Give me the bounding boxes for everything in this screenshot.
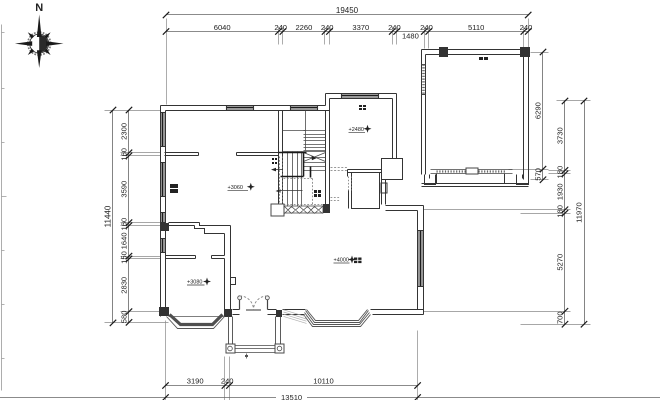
svg-text:1640: 1640 [119, 232, 128, 249]
svg-text:240: 240 [520, 23, 533, 32]
svg-text:19450: 19450 [336, 6, 359, 15]
svg-text:11440: 11440 [104, 205, 113, 227]
svg-text:5110: 5110 [468, 23, 484, 32]
svg-text:3370: 3370 [352, 23, 369, 32]
svg-text:160: 160 [119, 148, 128, 161]
svg-text:11970: 11970 [574, 202, 583, 223]
svg-text:240: 240 [321, 23, 334, 32]
svg-text:240: 240 [221, 376, 234, 385]
svg-text:700: 700 [555, 311, 564, 324]
svg-text:2830: 2830 [119, 277, 128, 294]
svg-text:10110: 10110 [313, 376, 334, 385]
svg-text:5270: 5270 [555, 254, 564, 271]
svg-text:6040: 6040 [214, 23, 231, 32]
svg-text:570: 570 [533, 168, 542, 181]
svg-text:150: 150 [119, 251, 128, 264]
svg-text:180: 180 [555, 205, 564, 218]
svg-text:2260: 2260 [295, 23, 312, 32]
svg-text:240: 240 [420, 23, 433, 32]
svg-text:13510: 13510 [281, 393, 302, 400]
svg-text:3590: 3590 [119, 181, 128, 198]
svg-text:3190: 3190 [187, 376, 204, 385]
svg-text:240: 240 [388, 23, 401, 32]
svg-text:180: 180 [555, 166, 564, 179]
svg-text:1930: 1930 [555, 183, 564, 200]
svg-text:1480: 1480 [402, 32, 419, 41]
svg-text:N: N [35, 2, 43, 14]
svg-text:6290: 6290 [533, 102, 542, 119]
svg-text:3730: 3730 [555, 127, 564, 144]
svg-text:580: 580 [119, 311, 128, 324]
svg-text:240: 240 [274, 23, 287, 32]
svg-text:2300: 2300 [119, 123, 128, 140]
svg-text:160: 160 [119, 218, 128, 231]
